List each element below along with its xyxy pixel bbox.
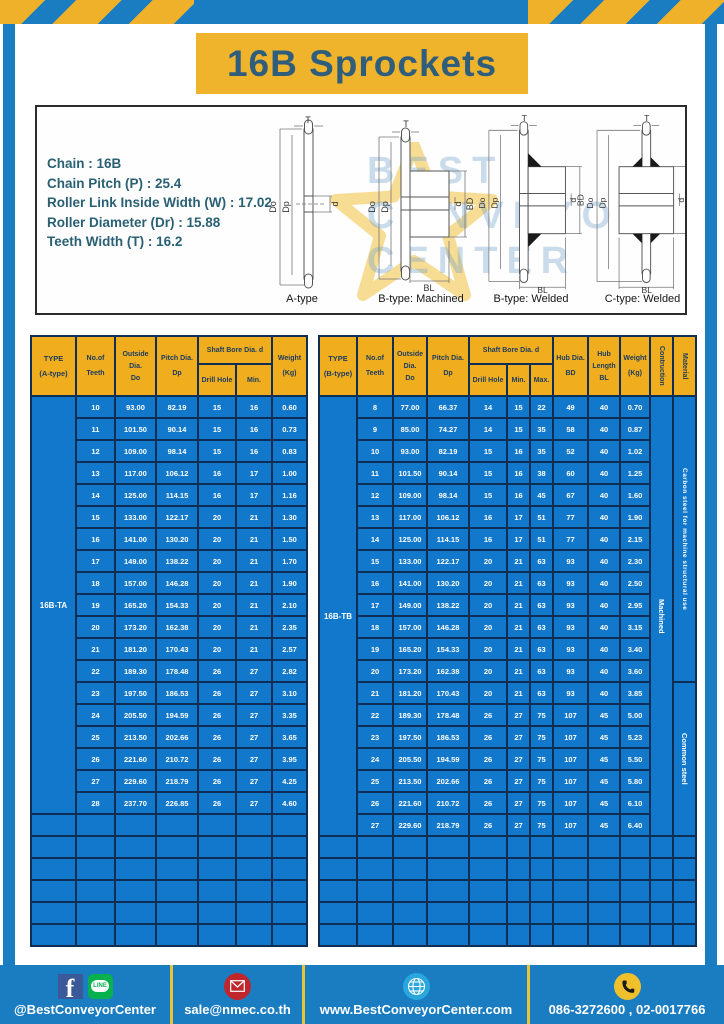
svg-text:T: T (403, 119, 409, 129)
table-cell: 1.90 (621, 507, 649, 527)
table-cell (77, 881, 114, 901)
table-cell: 75 (531, 771, 552, 791)
diagram-caption-a: A-type (252, 293, 352, 305)
table-cell: 98.14 (157, 441, 197, 461)
table-cell: 20 (358, 661, 392, 681)
table-cell: 20 (470, 595, 506, 615)
top-border-band (0, 0, 724, 24)
table-cell: 117.00 (394, 507, 426, 527)
col-header-outside-dia: OutsideDia.Do (394, 337, 426, 395)
table-cell: 93 (554, 595, 587, 615)
table-cell (508, 881, 529, 901)
table-cell: 1.02 (621, 441, 649, 461)
table-cell: 66.37 (428, 397, 468, 417)
table-cell: 26 (470, 727, 506, 747)
table-cell: 75 (531, 815, 552, 835)
table-cell: 20 (470, 661, 506, 681)
col-header-pitch-dia: Pitch Dia.Dp (157, 337, 197, 395)
table-cell: 93 (554, 639, 587, 659)
table-cell: 16B-TA (32, 397, 75, 813)
table-cell: 21 (77, 639, 114, 659)
spec-line: Chain : 16B (47, 154, 272, 174)
table-cell: 17 (77, 551, 114, 571)
table-cell (237, 925, 271, 945)
svg-text:T: T (305, 115, 311, 125)
col-header-min: Min. (508, 365, 529, 395)
table-cell (674, 881, 695, 901)
table-cell (589, 903, 619, 923)
table-cell: 106.12 (157, 463, 197, 483)
table-cell: 202.66 (428, 771, 468, 791)
table-cell: 157.00 (116, 573, 155, 593)
table-cell: 20 (199, 551, 235, 571)
table-cell (589, 881, 619, 901)
table-cell: 154.33 (428, 639, 468, 659)
sprocket-diagram-c-welded: T Do Dp d BD BL (585, 115, 687, 298)
table-cell: 45 (589, 727, 619, 747)
table-cell (157, 837, 197, 857)
table-cell: 74.27 (428, 419, 468, 439)
table-cell: 15 (199, 397, 235, 417)
table-cell (77, 859, 114, 879)
table-cell: 173.20 (116, 617, 155, 637)
table-cell: 15 (470, 485, 506, 505)
table-cell: 107 (554, 771, 587, 791)
table-cell: 90.14 (157, 419, 197, 439)
table-cell: 24 (358, 749, 392, 769)
col-header-max: Max. (531, 365, 552, 395)
table-cell: 141.00 (116, 529, 155, 549)
table-cell: 226.85 (157, 793, 197, 813)
table-cell (508, 837, 529, 857)
table-cell: 178.48 (157, 661, 197, 681)
table-cell: 26 (199, 683, 235, 703)
table-cell (508, 925, 529, 945)
table-cell (531, 925, 552, 945)
table-cell: 5.00 (621, 705, 649, 725)
table-cell: 107 (554, 749, 587, 769)
table-cell: 1.90 (273, 573, 306, 593)
table-cell: 1.60 (621, 485, 649, 505)
table-cell (358, 837, 392, 857)
table-cell: 15 (508, 419, 529, 439)
table-cell (428, 925, 468, 945)
table-cell (116, 837, 155, 857)
svg-text:BL: BL (537, 285, 548, 293)
phone-icon (614, 973, 641, 1000)
sprocket-diagram-b-machined: T Do Dp d BD BL (365, 115, 477, 298)
table-cell: 1.50 (273, 529, 306, 549)
table-cell: 23 (358, 727, 392, 747)
table-cell: 122.17 (157, 507, 197, 527)
table-cell (674, 925, 695, 945)
table-cell (116, 881, 155, 901)
sprocket-diagram-a-type: T Do Dp d (252, 115, 352, 298)
table-cell: 40 (589, 617, 619, 637)
table-cell: 0.83 (273, 441, 306, 461)
table-cell: 26 (199, 705, 235, 725)
table-cell: 38 (531, 463, 552, 483)
table-cell (531, 881, 552, 901)
table-cell: 4.60 (273, 793, 306, 813)
table-cell (199, 815, 235, 835)
table-cell: 21 (508, 551, 529, 571)
table-cell (199, 837, 235, 857)
table-cell: 2.10 (273, 595, 306, 615)
table-cell: 186.53 (157, 683, 197, 703)
table-cell: 8 (358, 397, 392, 417)
table-cell: 93 (554, 661, 587, 681)
table-cell: 11 (77, 419, 114, 439)
table-cell (157, 903, 197, 923)
table-cell: 165.20 (116, 595, 155, 615)
table-cell: Carbon steel for machine structural use (674, 397, 695, 681)
svg-text:Dp: Dp (598, 197, 608, 208)
table-cell (428, 859, 468, 879)
table-cell: 40 (589, 595, 619, 615)
table-cell: 16 (470, 529, 506, 549)
table-cell: 15 (358, 551, 392, 571)
table-cell (621, 903, 649, 923)
col-header-drill-hole: Drill Hole (199, 365, 235, 395)
spec-line: Teeth Width (T) : 16.2 (47, 232, 272, 252)
table-cell (394, 925, 426, 945)
table-cell: 165.20 (394, 639, 426, 659)
table-cell (554, 859, 587, 879)
table-cell: 229.60 (116, 771, 155, 791)
table-cell: 20 (470, 617, 506, 637)
table-cell: 35 (531, 441, 552, 461)
table-cell: 21 (237, 595, 271, 615)
table-cell: 21 (237, 639, 271, 659)
table-cell: 63 (531, 617, 552, 637)
table-cell: 106.12 (428, 507, 468, 527)
table-cell: 149.00 (394, 595, 426, 615)
table-cell: 15 (77, 507, 114, 527)
table-a-type: TYPE(A-type) No.ofTeeth OutsideDia.Do Pi… (30, 335, 308, 947)
table-cell: 21 (237, 573, 271, 593)
footer-phone-section: 086-3272600 , 02-0017766 (527, 965, 724, 1024)
table-cell (320, 859, 356, 879)
table-cell: 9 (358, 419, 392, 439)
table-cell: 162.38 (428, 661, 468, 681)
table-cell: 16 (358, 573, 392, 593)
table-cell: 6.40 (621, 815, 649, 835)
table-cell: 27 (508, 749, 529, 769)
table-cell: 122.17 (428, 551, 468, 571)
table-cell: 58 (554, 419, 587, 439)
col-header-weight: Weight(Kg) (273, 337, 306, 395)
col-header-shaft-bore: Shaft Bore Dia. d (470, 337, 552, 363)
table-cell: 2.95 (621, 595, 649, 615)
table-cell: 20 (470, 639, 506, 659)
table-cell (77, 837, 114, 857)
table-cell: 14 (470, 397, 506, 417)
table-cell: 218.79 (428, 815, 468, 835)
table-cell: 237.70 (116, 793, 155, 813)
table-cell (470, 903, 506, 923)
table-cell: 197.50 (116, 683, 155, 703)
table-cell: Common steel (674, 683, 695, 835)
table-cell (273, 925, 306, 945)
page-title: 16B Sprockets (227, 43, 497, 85)
table-cell (157, 881, 197, 901)
table-cell (273, 903, 306, 923)
col-header-weight: Weight(Kg) (621, 337, 649, 395)
table-cell: 221.60 (116, 749, 155, 769)
table-cell: 51 (531, 529, 552, 549)
table-cell: 189.30 (116, 661, 155, 681)
table-cell: 24 (77, 705, 114, 725)
table-cell: 17 (508, 507, 529, 527)
table-cell: 16 (77, 529, 114, 549)
table-cell: 26 (470, 749, 506, 769)
table-cell: 40 (589, 463, 619, 483)
table-cell (470, 925, 506, 945)
table-cell: 93 (554, 551, 587, 571)
table-cell (428, 881, 468, 901)
table-cell (116, 815, 155, 835)
table-cell: 26 (199, 661, 235, 681)
table-cell: 93 (554, 683, 587, 703)
table-cell: 18 (77, 573, 114, 593)
table-cell: 101.50 (116, 419, 155, 439)
table-cell: 213.50 (116, 727, 155, 747)
table-cell (651, 881, 672, 901)
table-cell: 18 (358, 617, 392, 637)
table-cell: 15 (199, 441, 235, 461)
table-cell: 21 (508, 683, 529, 703)
table-cell: 146.28 (157, 573, 197, 593)
table-cell: 0.60 (273, 397, 306, 417)
svg-text:d: d (676, 198, 686, 203)
table-cell: 109.00 (394, 485, 426, 505)
table-cell (116, 903, 155, 923)
table-cell (394, 881, 426, 901)
table-cell: 21 (508, 661, 529, 681)
table-cell: 26 (199, 749, 235, 769)
table-cell (320, 903, 356, 923)
table-cell: 173.20 (394, 661, 426, 681)
table-cell: 20 (199, 573, 235, 593)
svg-text:BD: BD (465, 197, 475, 210)
table-cell: 170.43 (157, 639, 197, 659)
table-cell: 141.00 (394, 573, 426, 593)
line-icon: LINE (88, 974, 113, 999)
table-cell: 157.00 (394, 617, 426, 637)
table-cell (237, 903, 271, 923)
table-cell (531, 903, 552, 923)
svg-text:Do: Do (477, 197, 487, 208)
table-cell (554, 925, 587, 945)
table-cell: 25 (77, 727, 114, 747)
table-cell: 25 (358, 771, 392, 791)
website-url: www.BestConveyorCenter.com (320, 1002, 512, 1017)
table-cell: 133.00 (116, 507, 155, 527)
table-cell: 75 (531, 749, 552, 769)
table-cell: 3.10 (273, 683, 306, 703)
table-cell: 27 (237, 771, 271, 791)
table-cell: 77 (554, 507, 587, 527)
svg-text:Dp: Dp (490, 197, 500, 208)
left-border (3, 24, 15, 965)
table-cell: 16 (237, 397, 271, 417)
table-cell: 16 (470, 507, 506, 527)
svg-text:d: d (330, 201, 340, 206)
table-cell: 16 (237, 419, 271, 439)
diagram-panel: BEST CONVEYOR CENTER Chain : 16B Chain P… (35, 105, 687, 315)
table-cell (358, 881, 392, 901)
table-cell: 20 (199, 639, 235, 659)
table-cell: 21 (358, 683, 392, 703)
table-cell: 10 (77, 397, 114, 417)
table-cell: 27 (508, 815, 529, 835)
table-cell (237, 881, 271, 901)
table-cell: 23 (77, 683, 114, 703)
table-cell (508, 859, 529, 879)
table-cell (358, 925, 392, 945)
table-cell: 15 (508, 397, 529, 417)
table-cell (428, 903, 468, 923)
table-cell: 2.82 (273, 661, 306, 681)
spec-line: Roller Diameter (Dr) : 15.88 (47, 213, 272, 233)
table-cell: 149.00 (116, 551, 155, 571)
table-cell: 63 (531, 573, 552, 593)
table-cell: 63 (531, 595, 552, 615)
table-cell: 77 (554, 529, 587, 549)
table-cell: 202.66 (157, 727, 197, 747)
table-cell: 213.50 (394, 771, 426, 791)
table-cell: 0.87 (621, 419, 649, 439)
table-cell: 15 (470, 441, 506, 461)
sprocket-diagram-b-welded: T Do Dp d BD BL (475, 115, 587, 298)
table-cell (428, 837, 468, 857)
table-cell: 35 (531, 419, 552, 439)
table-cell: 26 (470, 771, 506, 791)
table-cell: 45 (589, 815, 619, 835)
table-cell (237, 837, 271, 857)
table-cell: 45 (589, 771, 619, 791)
table-cell: 28 (77, 793, 114, 813)
table-cell: 40 (589, 573, 619, 593)
col-header-type-a: TYPE(A-type) (32, 337, 75, 395)
table-cell (320, 837, 356, 857)
table-cell: 229.60 (394, 815, 426, 835)
table-cell: 67 (554, 485, 587, 505)
footer-contact-bar: f LINE @BestConveyorCenter sale@nmec.co.… (0, 965, 724, 1024)
table-cell: 27 (508, 705, 529, 725)
table-cell: 20 (470, 683, 506, 703)
table-cell: 16 (508, 463, 529, 483)
table-cell: 138.22 (157, 551, 197, 571)
spec-line: Roller Link Inside Width (W) : 17.02 (47, 193, 272, 213)
table-cell: 178.48 (428, 705, 468, 725)
table-cell (32, 903, 75, 923)
table-cell: 5.80 (621, 771, 649, 791)
table-cell: 130.20 (157, 529, 197, 549)
table-cell: 63 (531, 639, 552, 659)
table-cell (470, 859, 506, 879)
table-cell: 1.16 (273, 485, 306, 505)
table-cell: 22 (531, 397, 552, 417)
table-cell: 40 (589, 529, 619, 549)
table-cell (157, 859, 197, 879)
table-cell: 15 (470, 463, 506, 483)
table-cell: 107 (554, 793, 587, 813)
table-cell: 93.00 (394, 441, 426, 461)
table-cell: 10 (358, 441, 392, 461)
table-cell: 26 (77, 749, 114, 769)
table-cell (621, 925, 649, 945)
table-cell: 19 (358, 639, 392, 659)
table-cell (77, 903, 114, 923)
table-cell (32, 925, 75, 945)
table-cell (674, 903, 695, 923)
table-cell: 20 (199, 595, 235, 615)
table-cell: 21 (508, 617, 529, 637)
footer-social-section: f LINE @BestConveyorCenter (0, 965, 170, 1024)
table-cell: 27 (77, 771, 114, 791)
table-cell (77, 925, 114, 945)
col-header-drill-hole: Drill Hole (470, 365, 506, 395)
diagram-caption-b-machined: B-type: Machined (365, 293, 477, 305)
table-cell: 2.15 (621, 529, 649, 549)
table-cell: 138.22 (428, 595, 468, 615)
table-cell (32, 859, 75, 879)
svg-text:Do: Do (367, 201, 377, 213)
diagram-caption-b-welded: B-type: Welded (475, 293, 587, 305)
table-cell: 75 (531, 793, 552, 813)
table-cell: 107 (554, 705, 587, 725)
table-cell: 27 (508, 727, 529, 747)
table-cell: 5.50 (621, 749, 649, 769)
col-header-teeth: No.ofTeeth (77, 337, 114, 395)
table-cell: 21 (237, 617, 271, 637)
table-cell: 197.50 (394, 727, 426, 747)
table-cell: 40 (589, 419, 619, 439)
table-cell (199, 925, 235, 945)
table-cell: 13 (358, 507, 392, 527)
table-cell: 17 (358, 595, 392, 615)
svg-text:d: d (453, 201, 463, 206)
table-cell: 3.40 (621, 639, 649, 659)
table-cell (554, 837, 587, 857)
table-cell: 146.28 (428, 617, 468, 637)
table-cell (674, 859, 695, 879)
table-cell: 101.50 (394, 463, 426, 483)
table-cell (273, 815, 306, 835)
table-cell (320, 925, 356, 945)
table-cell: 210.72 (428, 793, 468, 813)
table-cell: 26 (199, 727, 235, 747)
table-cell: 27 (237, 727, 271, 747)
table-cell: 49 (554, 397, 587, 417)
table-cell: 154.33 (157, 595, 197, 615)
table-cell: 75 (531, 727, 552, 747)
hazard-stripes-right (528, 0, 724, 24)
table-cell (674, 837, 695, 857)
footer-email-section: sale@nmec.co.th (170, 965, 302, 1024)
table-cell: 16 (508, 441, 529, 461)
table-cell: 52 (554, 441, 587, 461)
table-cell (621, 859, 649, 879)
col-header-construction: Contruction (651, 337, 672, 395)
table-cell: 15 (199, 419, 235, 439)
table-cell: 194.59 (428, 749, 468, 769)
table-cell (157, 925, 197, 945)
table-cell: 17 (508, 529, 529, 549)
table-cell: 26 (199, 771, 235, 791)
